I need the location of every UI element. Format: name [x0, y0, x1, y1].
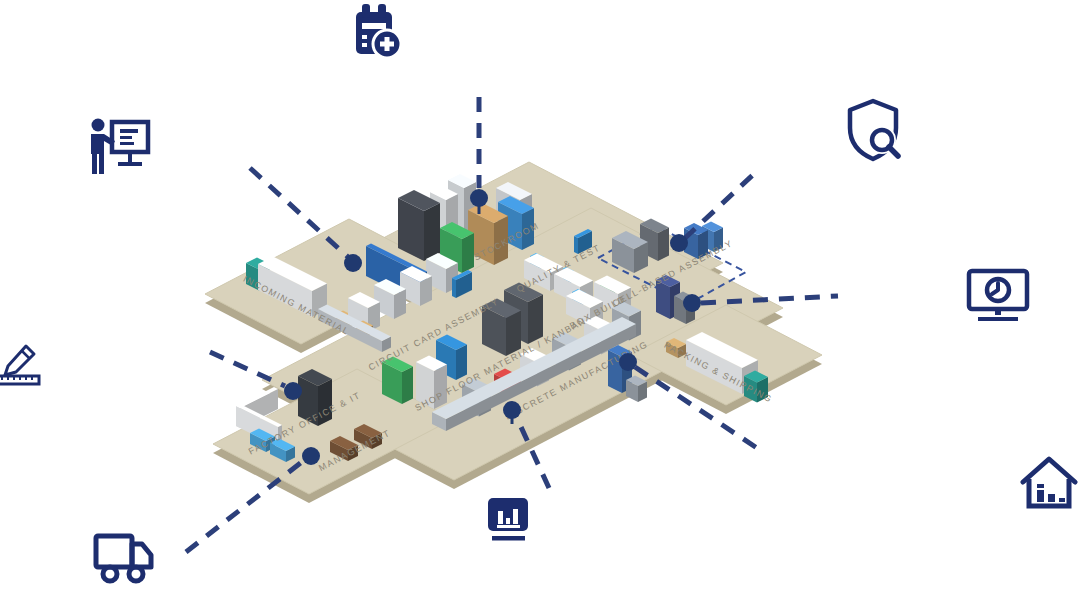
connector-dot[interactable]	[670, 234, 688, 252]
iso-box-face	[456, 345, 467, 381]
factory-map-stage: STOCKROOM QUALITY & TEST CELL-BASED ASSE…	[0, 0, 1080, 599]
connector-dot[interactable]	[470, 189, 488, 207]
connector-dot[interactable]	[344, 254, 362, 272]
iso-box-face	[424, 203, 440, 261]
connector-dot[interactable]	[683, 294, 701, 312]
connector-line-training	[250, 168, 348, 257]
iso-box-face	[402, 367, 413, 405]
delivery-truck-icon[interactable]	[92, 524, 156, 590]
connector-dot[interactable]	[284, 382, 302, 400]
iso-box-face	[528, 295, 543, 345]
connector-dot[interactable]	[302, 447, 320, 465]
design-pencil-ruler-icon[interactable]	[0, 332, 48, 386]
production-chart-icon[interactable]	[486, 496, 532, 542]
iso-box-face	[658, 228, 669, 262]
shield-inspection-icon[interactable]	[844, 98, 902, 162]
iso-box-face	[574, 236, 578, 254]
home-analytics-icon[interactable]	[1020, 452, 1078, 516]
connector-dot[interactable]	[619, 353, 637, 371]
presenter-training-icon[interactable]	[86, 116, 152, 178]
calendar-add-icon[interactable]	[354, 4, 404, 64]
factory-map-canvas: STOCKROOM QUALITY & TEST CELL-BASED ASSE…	[0, 0, 1080, 599]
iso-box-face	[452, 278, 456, 298]
monitor-clock-icon[interactable]	[966, 268, 1030, 324]
connector-dot[interactable]	[503, 401, 521, 419]
